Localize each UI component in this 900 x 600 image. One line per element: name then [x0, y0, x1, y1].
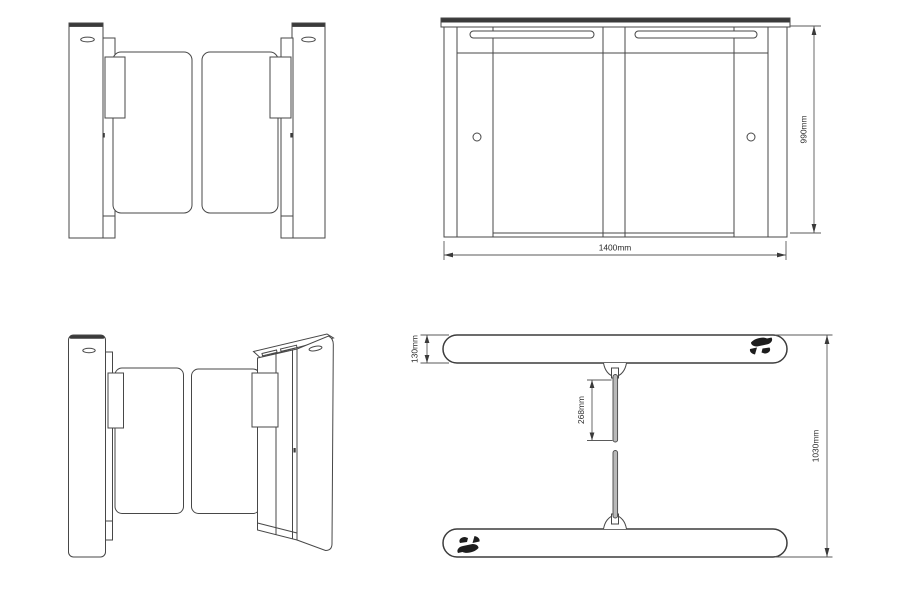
- dimension-overall-depth: 1030mm: [775, 335, 833, 557]
- left-pedestal-top-cap: [70, 24, 103, 27]
- left-wing-bracket-3d: [108, 373, 124, 428]
- bottom-cabinet-plan: [443, 529, 787, 557]
- glass-wing-right: [202, 52, 278, 213]
- right-keyhole: [290, 133, 292, 138]
- right-pedestal: [292, 23, 325, 238]
- lid-slot-right: [635, 31, 757, 38]
- plan-view: 130mm 268mm 1030mm: [410, 335, 833, 557]
- right-pedestal-3d: [254, 334, 334, 551]
- front-view: [69, 23, 325, 238]
- lid-slot-left: [470, 31, 594, 38]
- right-wing-bracket: [270, 57, 291, 118]
- perspective-view: [69, 334, 334, 557]
- dimension-height: 990mm: [790, 26, 821, 233]
- dimension-label-cabinet-depth: 130mm: [410, 335, 420, 363]
- left-keyhole: [103, 133, 105, 138]
- right-wing-bracket-3d: [252, 373, 278, 427]
- glass-wing-left-3d: [115, 368, 184, 514]
- left-pedestal-3d-cap: [70, 336, 105, 339]
- left-pedestal: [69, 23, 103, 238]
- dimension-label-overall-depth: 1030mm: [811, 430, 821, 463]
- left-pedestal-3d: [69, 335, 106, 557]
- bottom-wing-plan: [613, 451, 618, 519]
- cabinet-body: [444, 27, 787, 237]
- dimension-label-width: 1400mm: [599, 243, 632, 253]
- dimension-label-height: 990mm: [799, 116, 809, 144]
- top-cabinet-plan: [443, 335, 787, 363]
- side-elevation-view: 1400mm 990mm: [441, 18, 821, 260]
- dimension-width: 1400mm: [444, 241, 786, 260]
- right-lock-button: [747, 133, 755, 141]
- dimension-label-wing-length: 268mm: [576, 396, 586, 424]
- dimension-wing-length: 268mm: [576, 380, 613, 441]
- front-face: [297, 336, 333, 551]
- left-wing-bracket: [105, 57, 125, 118]
- technical-drawing-canvas: 1400mm 990mm: [0, 0, 900, 600]
- keyhole-3d: [294, 448, 296, 453]
- top-wing-plan: [613, 375, 618, 443]
- glass-wing-right-3d: [192, 369, 261, 514]
- left-lock-button: [473, 133, 481, 141]
- lid-cap: [442, 19, 790, 23]
- right-pedestal-top-cap: [293, 24, 325, 27]
- speed-gate-drawing: 1400mm 990mm: [0, 0, 900, 600]
